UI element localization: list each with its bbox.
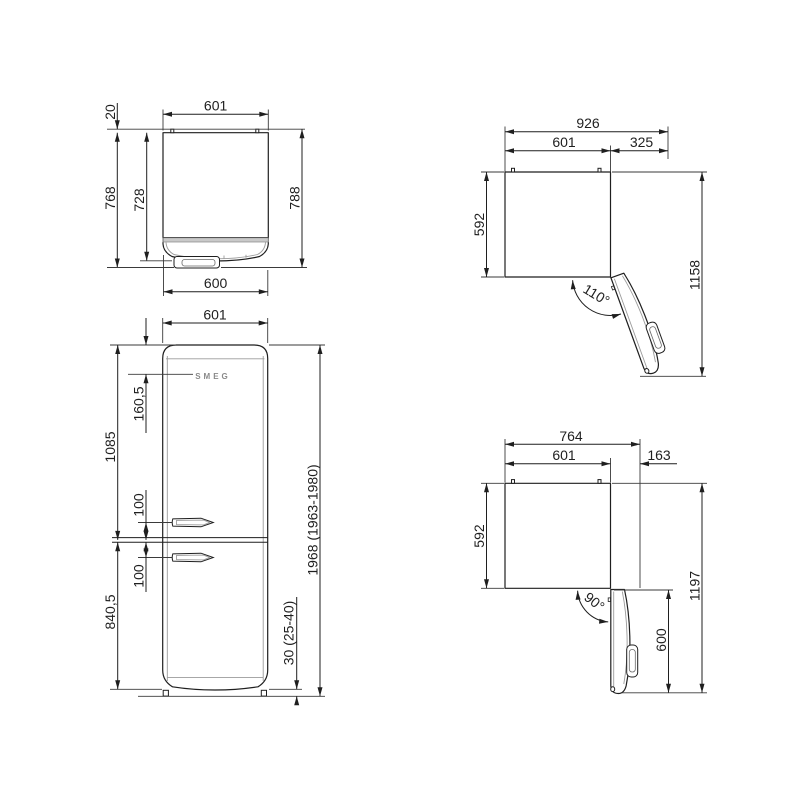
rear-spacer-right [598, 168, 601, 172]
dim-overall-width-110: 926 [576, 115, 600, 131]
view-top-open-90: 90° 764 601 163 592 600 1197 [471, 428, 707, 694]
dim-body-width-110: 601 [552, 134, 576, 150]
refrigerator-dimension-drawing: 601 20 768 728 788 600 110° 926 601 325 [0, 0, 800, 800]
open-door-90 [608, 590, 638, 694]
rear-spacer-left [171, 129, 174, 133]
dim-lower-handle-gap: 100 [131, 564, 147, 588]
view-front: SMEG 601 160,5 1085 100 100 840,5 [102, 307, 325, 704]
rear-spacer-right [256, 129, 259, 133]
dim-control-offset: 160,5 [131, 386, 147, 421]
dim-depth-total: 788 [287, 186, 303, 210]
view-top-closed: 601 20 768 728 788 600 [102, 98, 307, 297]
cabinet-plan-outline-110 [505, 172, 611, 277]
dim-overall-depth-110: 1158 [687, 260, 703, 290]
view-top-open-110: 110° 926 601 325 592 1158 [471, 115, 707, 376]
rear-spacer-left [512, 480, 515, 484]
door-gasket-band [163, 238, 268, 243]
dim-fridge-section-height: 1085 [102, 431, 118, 462]
front-outline [163, 345, 268, 690]
dim-upper-handle-gap: 100 [131, 493, 147, 517]
dim-depth-90: 592 [471, 524, 487, 548]
open-door-110 [609, 269, 672, 377]
dim-top-width: 601 [204, 98, 228, 114]
dim-rear-spacer: 20 [102, 104, 118, 120]
dim-door-projection-90: 163 [647, 447, 671, 463]
dim-door-projection-110: 325 [630, 134, 654, 150]
foot-left [163, 690, 168, 696]
dim-feet-height: 30 (25-40) [281, 601, 297, 666]
dim-depth-110: 592 [471, 213, 487, 237]
dim-door-width: 600 [204, 275, 228, 291]
dim-freezer-section-height: 840,5 [102, 594, 118, 629]
foot-right [261, 690, 266, 696]
dim-overall-width-90: 764 [559, 428, 583, 444]
dim-opening-angle-110: 110° [580, 281, 612, 309]
cabinet-plan-outline-90 [505, 483, 611, 588]
dim-total-height: 1968 (1963-1980) [305, 464, 321, 575]
drawing-canvas: 601 20 768 728 788 600 110° 926 601 325 [0, 0, 800, 800]
dim-body-width-90: 601 [552, 447, 576, 463]
cabinet-plan-outline [163, 133, 268, 238]
dim-overall-depth-90: 1197 [687, 571, 703, 601]
rear-spacer-left [512, 168, 515, 172]
dim-depth-body: 728 [131, 188, 147, 212]
dim-front-width: 601 [203, 307, 227, 323]
rear-spacer-right [598, 480, 601, 484]
dim-depth-with-door: 768 [102, 186, 118, 210]
dim-door-length-90: 600 [653, 628, 669, 652]
brand-logo: SMEG [195, 372, 231, 381]
